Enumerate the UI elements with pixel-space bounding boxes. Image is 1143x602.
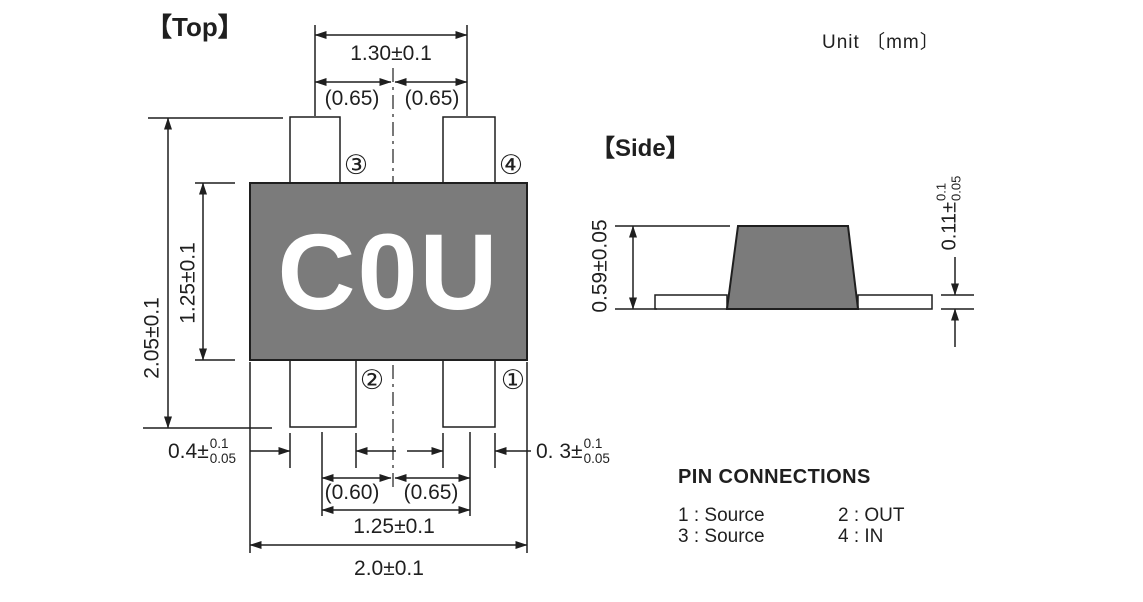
tolerance-lower: 0.05 [210,451,236,466]
pin-4-number: ④ [499,151,523,181]
tolerance-lower: 0.05 [584,451,610,466]
pin-1-lead [443,360,495,427]
dim-label-lead-span-bottom: 1.25±0.1 [353,515,435,538]
dim-label-lead-thickness: 0.11±0.10.05 [934,176,963,251]
dim-label-overall-width: 2.0±0.1 [354,557,424,580]
pin-2-number: ② [360,366,384,396]
dim-lead-width-left [250,433,396,468]
side-view-title: 【Side】 [591,136,690,162]
pin-connection-entry-2: 2 : OUT [838,506,905,527]
dim-value: 0.4± [168,440,209,463]
pin-connection-entry-3: 3 : Source [678,527,765,548]
pin-4-lead [443,117,495,183]
dim-label-pitch-top-right: (0.65) [405,87,460,110]
dim-label-lead-width-left: 0.4±0.10.05 [168,436,236,466]
dim-label-pitch-top-left: (0.65) [325,87,380,110]
tolerance-upper: 0.1 [210,436,236,451]
pin-connection-entry-4: 4 : IN [838,527,883,548]
side-left-lead [655,295,727,309]
drawing-layer [0,0,1143,602]
dim-label-pitch-bottom-right: (0.65) [404,481,459,504]
dim-lead-width-right [407,433,531,468]
side-view-drawing [615,226,974,347]
pin-1-number: ① [501,366,525,396]
tolerance-lower: 0.05 [949,176,964,201]
pin-connection-entry-1: 1 : Source [678,506,765,527]
pin-3-number: ③ [344,151,368,181]
dim-label-pitch-bottom-left: (0.60) [325,481,380,504]
dim-label-side-body-height: 0.59±0.05 [588,219,611,312]
dim-label-lead-width-right: 0. 3±0.10.05 [536,436,610,466]
dim-label-lead-span-top: 1.30±0.1 [350,42,432,65]
tolerance-upper: 0.1 [584,436,610,451]
unit-label: Unit 〔mm〕 [822,33,940,54]
pin-connections-title: PIN CONNECTIONS [678,466,871,488]
dim-lead-thickness [941,257,974,347]
top-view-title: 【Top】 [146,13,244,42]
dim-body-height [195,183,235,360]
pin-2-lead [290,360,356,427]
dim-label-overall-height: 2.05±0.1 [140,297,163,379]
dim-label-body-height: 1.25±0.1 [176,242,199,324]
package-marking: C0U [250,183,527,360]
dim-value: 0. 3± [536,440,583,463]
package-dimension-drawing: 【Top】 Unit 〔mm〕 1.30±0.1 (0.65) (0.65) 2… [0,0,1143,602]
tolerance-upper: 0.1 [934,176,949,201]
pin-3-lead [290,117,340,183]
dim-value: 0.11± [938,202,960,250]
side-right-lead [858,295,932,309]
side-body-trapezoid [727,226,858,309]
